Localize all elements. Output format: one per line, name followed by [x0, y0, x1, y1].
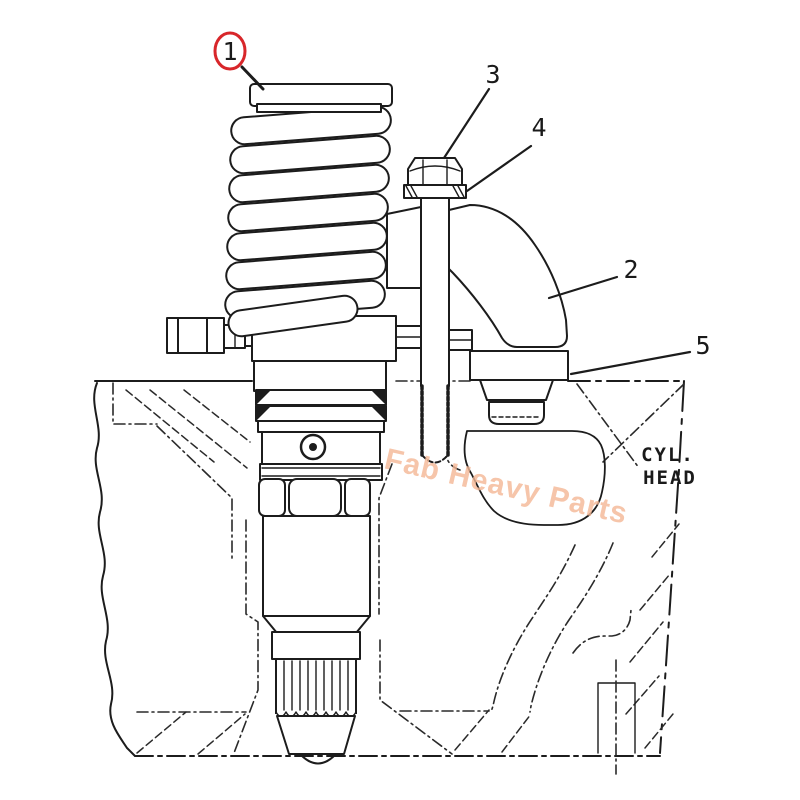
cyl-head-label: CYL. HEAD	[641, 444, 697, 489]
watermark-text: Fab Heavy Parts	[381, 443, 631, 531]
spring-front-coils	[224, 106, 392, 338]
callout-4-leader	[467, 146, 531, 191]
injector-nozzle	[272, 632, 360, 764]
injector-hex-nut	[259, 479, 370, 516]
callout-3: 3	[444, 60, 501, 158]
callout-5: 5	[571, 331, 711, 374]
bolt-washer	[404, 185, 466, 198]
callout-2: 2	[549, 255, 639, 298]
cyl-head-label-line1: CYL.	[641, 444, 695, 466]
callout-4: 4	[467, 113, 547, 191]
injector-spring	[224, 84, 392, 338]
spring-top-cap	[250, 84, 392, 112]
spacer-plate	[470, 351, 568, 380]
parts-diagram-page: 1 3 4 2 5 CYL. HEAD Fab Heavy Parts	[0, 0, 800, 800]
callout-5-number: 5	[695, 331, 710, 360]
fuel-injector	[167, 316, 396, 764]
injector-diagram: 1 3 4 2 5 CYL. HEAD Fab Heavy Parts	[0, 0, 800, 800]
callout-4-number: 4	[531, 113, 546, 142]
callout-1: 1	[215, 33, 263, 89]
bolt-hex-head	[408, 158, 462, 185]
cyl-head-label-line2: HEAD	[643, 467, 697, 489]
exhaust-port-passage	[400, 543, 631, 712]
callout-5-leader	[571, 352, 690, 374]
injector-body	[252, 316, 396, 633]
callout-2-number: 2	[623, 255, 638, 284]
clamp-bolt	[396, 158, 472, 463]
callout-2-leader	[549, 277, 617, 298]
callout-3-number: 3	[485, 60, 500, 89]
callout-3-leader	[444, 89, 489, 158]
callout-1-number: 1	[222, 37, 237, 66]
